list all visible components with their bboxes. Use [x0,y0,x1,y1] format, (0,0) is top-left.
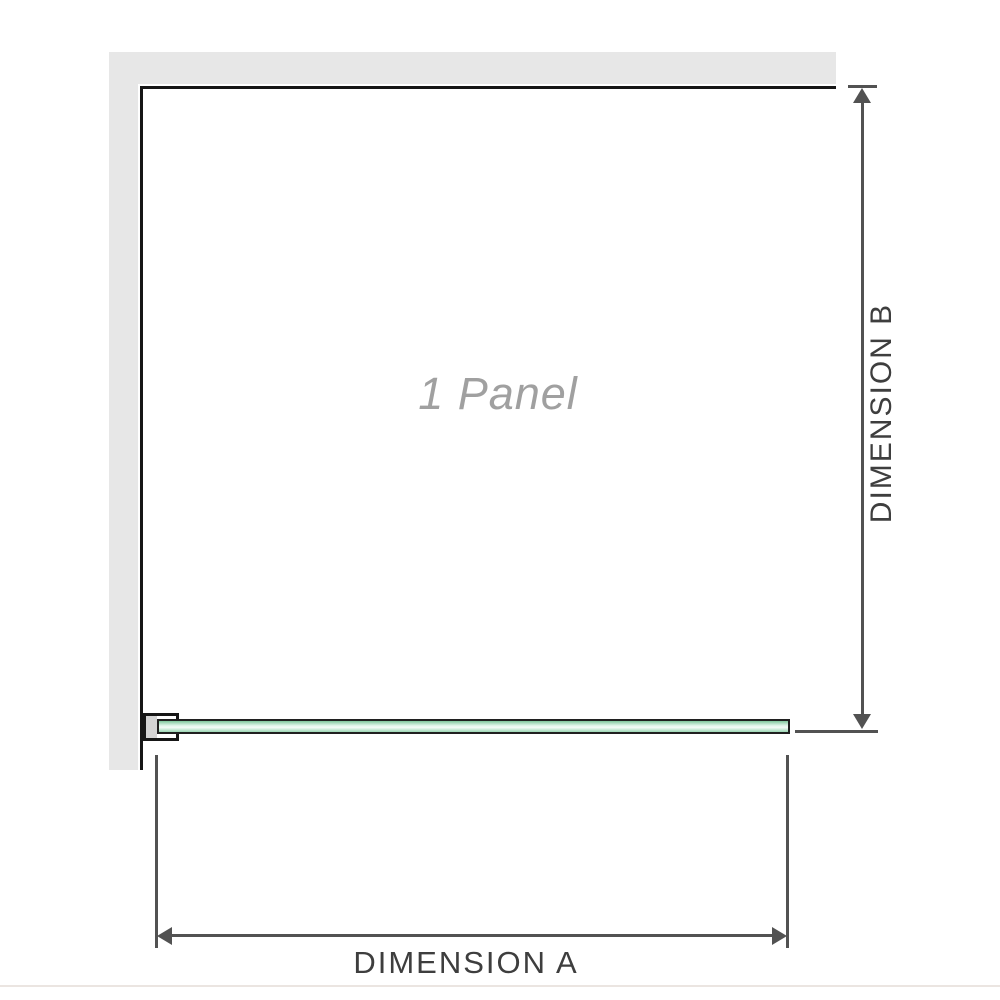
bottom-rule [0,985,1000,987]
panel-diagram: 1 Panel DIMENSION B DIMENSION A [0,0,1000,1000]
dimension-b-bottom-tick [795,730,878,733]
wall-left [109,52,138,770]
arrow-down-icon [853,714,871,729]
dimension-a-right-extension [786,755,789,948]
arrow-left-icon [157,927,172,945]
dimension-a-label: DIMENSION A [266,946,666,980]
dimension-a-stem [168,934,774,938]
wall-top [109,52,836,84]
bracket-pad [146,716,157,738]
panel-outline-top [140,86,836,89]
glass-panel [157,719,790,734]
panel-outline-left [140,86,143,770]
dimension-b-label: DIMENSION B [864,253,900,573]
arrow-right-icon [772,927,787,945]
dimension-a-left-extension [155,755,158,948]
arrow-up-icon [853,88,871,103]
panel-label: 1 Panel [348,368,648,420]
